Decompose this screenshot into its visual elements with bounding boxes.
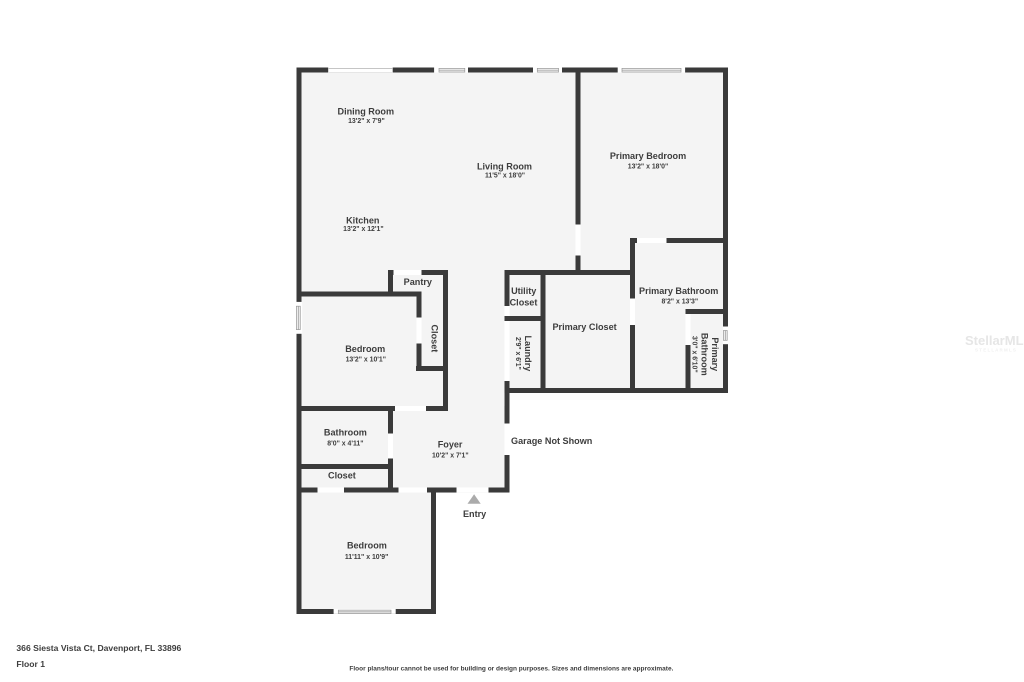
svg-text:Entry: Entry	[463, 509, 487, 519]
svg-text:13'2" x 10'1": 13'2" x 10'1"	[346, 357, 386, 364]
svg-text:Bathroom: Bathroom	[700, 333, 710, 376]
svg-text:Utility: Utility	[511, 286, 537, 296]
svg-text:8'0" x 4'11": 8'0" x 4'11"	[327, 441, 363, 448]
svg-text:11'11" x 10'9": 11'11" x 10'9"	[345, 554, 389, 561]
svg-text:366 Siesta Vista Ct, Davenport: 366 Siesta Vista Ct, Davenport, FL 33896	[16, 643, 181, 653]
svg-text:13'2" x 18'0": 13'2" x 18'0"	[628, 163, 668, 170]
svg-text:Floor plans/tour cannot be use: Floor plans/tour cannot be used for buil…	[349, 666, 673, 673]
svg-text:StellarMLS: StellarMLS	[965, 333, 1024, 348]
svg-text:11'5" x 18'0": 11'5" x 18'0"	[485, 173, 525, 180]
svg-text:Primary Closet: Primary Closet	[552, 322, 616, 332]
svg-text:Bedroom: Bedroom	[347, 541, 387, 551]
svg-text:Closet: Closet	[430, 325, 440, 353]
svg-text:13'2" x 7'9": 13'2" x 7'9"	[348, 118, 385, 125]
svg-text:Dining Room: Dining Room	[338, 106, 395, 116]
svg-text:10'2" x 7'1": 10'2" x 7'1"	[432, 453, 469, 460]
svg-text:Kitchen: Kitchen	[346, 215, 379, 225]
svg-text:8'2" x 13'3": 8'2" x 13'3"	[661, 299, 698, 306]
svg-text:Primary: Primary	[710, 337, 720, 372]
svg-text:Floor 1: Floor 1	[16, 659, 45, 669]
svg-text:Living Room: Living Room	[477, 161, 532, 171]
svg-text:Bathroom: Bathroom	[324, 428, 367, 438]
svg-text:Foyer: Foyer	[438, 440, 463, 450]
svg-text:Closet: Closet	[328, 471, 356, 481]
svg-text:Primary Bedroom: Primary Bedroom	[610, 151, 686, 161]
svg-text:Garage Not Shown: Garage Not Shown	[511, 436, 592, 446]
svg-text:S T E L L A R M L S: S T E L L A R M L S	[975, 348, 1016, 353]
svg-text:Pantry: Pantry	[404, 277, 433, 287]
svg-text:Primary Bathroom: Primary Bathroom	[639, 286, 718, 296]
svg-text:Laundry: Laundry	[523, 335, 533, 372]
svg-text:13'2" x 12'1": 13'2" x 12'1"	[343, 226, 383, 233]
svg-text:2'9" x 6'1": 2'9" x 6'1"	[514, 337, 521, 370]
svg-text:Closet: Closet	[510, 297, 538, 307]
svg-text:Bedroom: Bedroom	[345, 344, 385, 354]
svg-text:3'0" x 6'10": 3'0" x 6'10"	[690, 336, 697, 373]
